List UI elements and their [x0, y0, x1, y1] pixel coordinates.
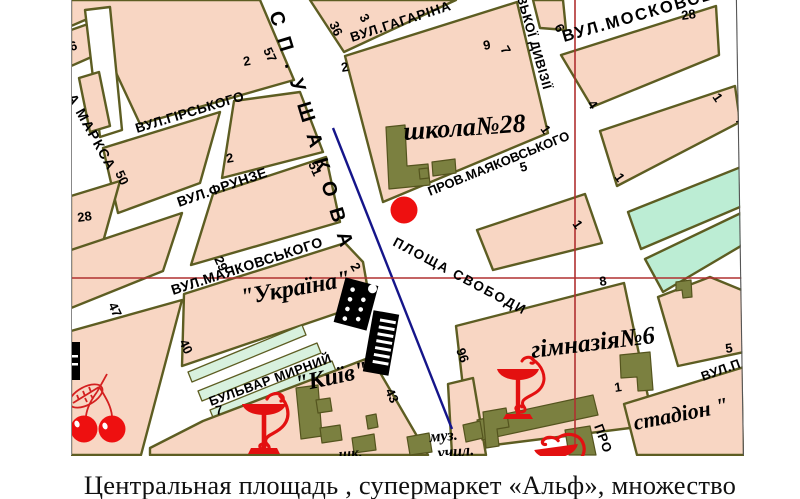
svg-text:Центральная площадь , супермар: Центральная площадь , супермаркет «Альф»…	[84, 470, 736, 499]
svg-text:28: 28	[76, 208, 92, 225]
svg-text:28: 28	[680, 6, 696, 23]
